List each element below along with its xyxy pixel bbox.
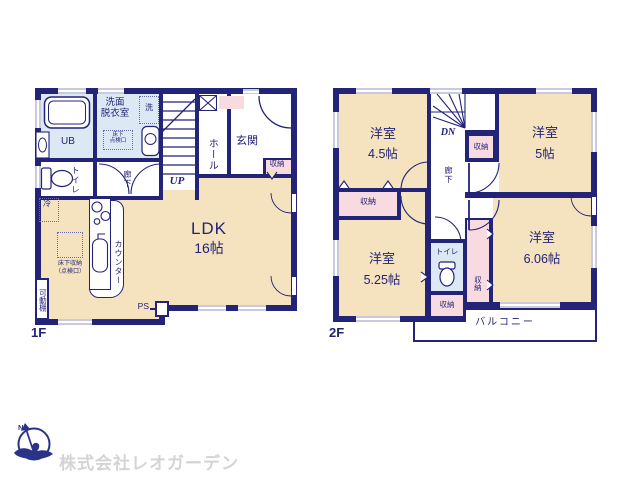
f1-stair-break-line [162,99,195,132]
f1-closet-chevron [267,172,277,179]
f1-toilet-label: トイレ [70,164,80,196]
logo-bird [14,443,53,459]
f2-room5-name: 洋室 [505,126,585,141]
f1-washstand-icon [142,127,159,156]
f2-closet-bottom-label: 収納 [431,301,463,309]
logo-compass-n: N [18,423,23,432]
f1-entrance-label: 玄関 [227,135,267,147]
f2-corridor-label: 廊下 [443,162,452,188]
f2-room5-size: 5帖 [505,147,585,161]
f2-room525-size: 5.25帖 [342,273,422,287]
f1-shoe-cabinet-x [200,96,216,110]
f2-door-arc-45 [401,162,429,190]
f1-toilet-icon [42,168,73,189]
f1-counter-label: カウンター [113,226,122,298]
f1-washroom-label: 洗面 脱衣室 [95,98,135,119]
f1-pipe-space-label: PS [128,302,149,312]
f2-closet-stairs-label: 収納 [469,143,493,151]
f2-toilet-door-arc [435,217,461,243]
f2-closet-tall-label: 収納 [473,268,481,298]
f2-closet-mid-label: 収納 [339,198,397,207]
f1-stair-treads [162,99,195,174]
f1-movable-shelf-label: 可動棚 [38,281,46,319]
f2-room525-name: 洋室 [342,252,422,267]
f2-room45-name: 洋室 [343,127,423,142]
f1-underfloor-line1: 床下収納 [48,261,92,269]
f1-casement-arc-2 [271,276,291,296]
f2-stair-fan [431,94,465,128]
f1-bath-label: UB [50,136,86,147]
f2-floor-label: 2F [329,326,359,341]
f1-floor-hatch-line2: 点検口 [103,138,133,144]
f1-ldk-label: LDK [169,219,249,238]
f2-door-arc-606 [469,200,499,230]
f2-door-arc-5 [469,163,499,193]
f2-room606-size: 6.06帖 [502,252,582,266]
f2-toilet-label: トイレ [431,248,463,256]
f1-kitchen-sink-icon [93,234,108,272]
f1-bathtub-icon [45,97,90,128]
f1-ldk-size-label: 16帖 [169,241,249,257]
f1-entrance-door-arc [259,96,291,128]
f2-room606-name: 洋室 [502,231,582,246]
f1-fridge-label: 冷 [41,200,53,209]
f2-dn-label: DN [436,127,460,138]
f1-underfloor-line2: （点検口） [48,269,92,277]
f1-floor-label: 1F [31,326,61,341]
f1-corridor-door-arc-2 [131,164,161,194]
floorplan-canvas: UB 洗面 脱衣室 洗 床下 点検口 トイレ 廊下 ホール 玄関 収納 UP L… [0,0,640,480]
f2-door-arc-525 [401,196,429,224]
f1-bath-sink-icon [36,132,49,158]
f1-stove-icon [92,202,110,224]
f2-casement-arc [571,196,591,216]
company-logo: N [12,422,60,470]
f1-washroom-label-line2: 脱衣室 [95,109,135,120]
f1-up-label: UP [161,175,193,187]
f1-underfloor-storage-label: 床下収納 （点検口） [48,261,92,277]
company-name: 株式会社レオガーデン [59,449,239,474]
f1-floor-hatch-label: 床下 点検口 [103,132,133,144]
f1-entrance-closet-label: 収納 [263,160,291,168]
f2-toilet-icon [439,262,455,286]
f2-balcony-label: バルコニー [413,317,597,328]
f2-room45-size: 4.5帖 [343,147,423,161]
f1-casement-arc-1 [271,193,291,213]
f1-hall-label: ホール [206,126,217,182]
f1-washer-label: 洗 [139,104,159,113]
f1-corridor-label: 廊下 [122,166,131,192]
